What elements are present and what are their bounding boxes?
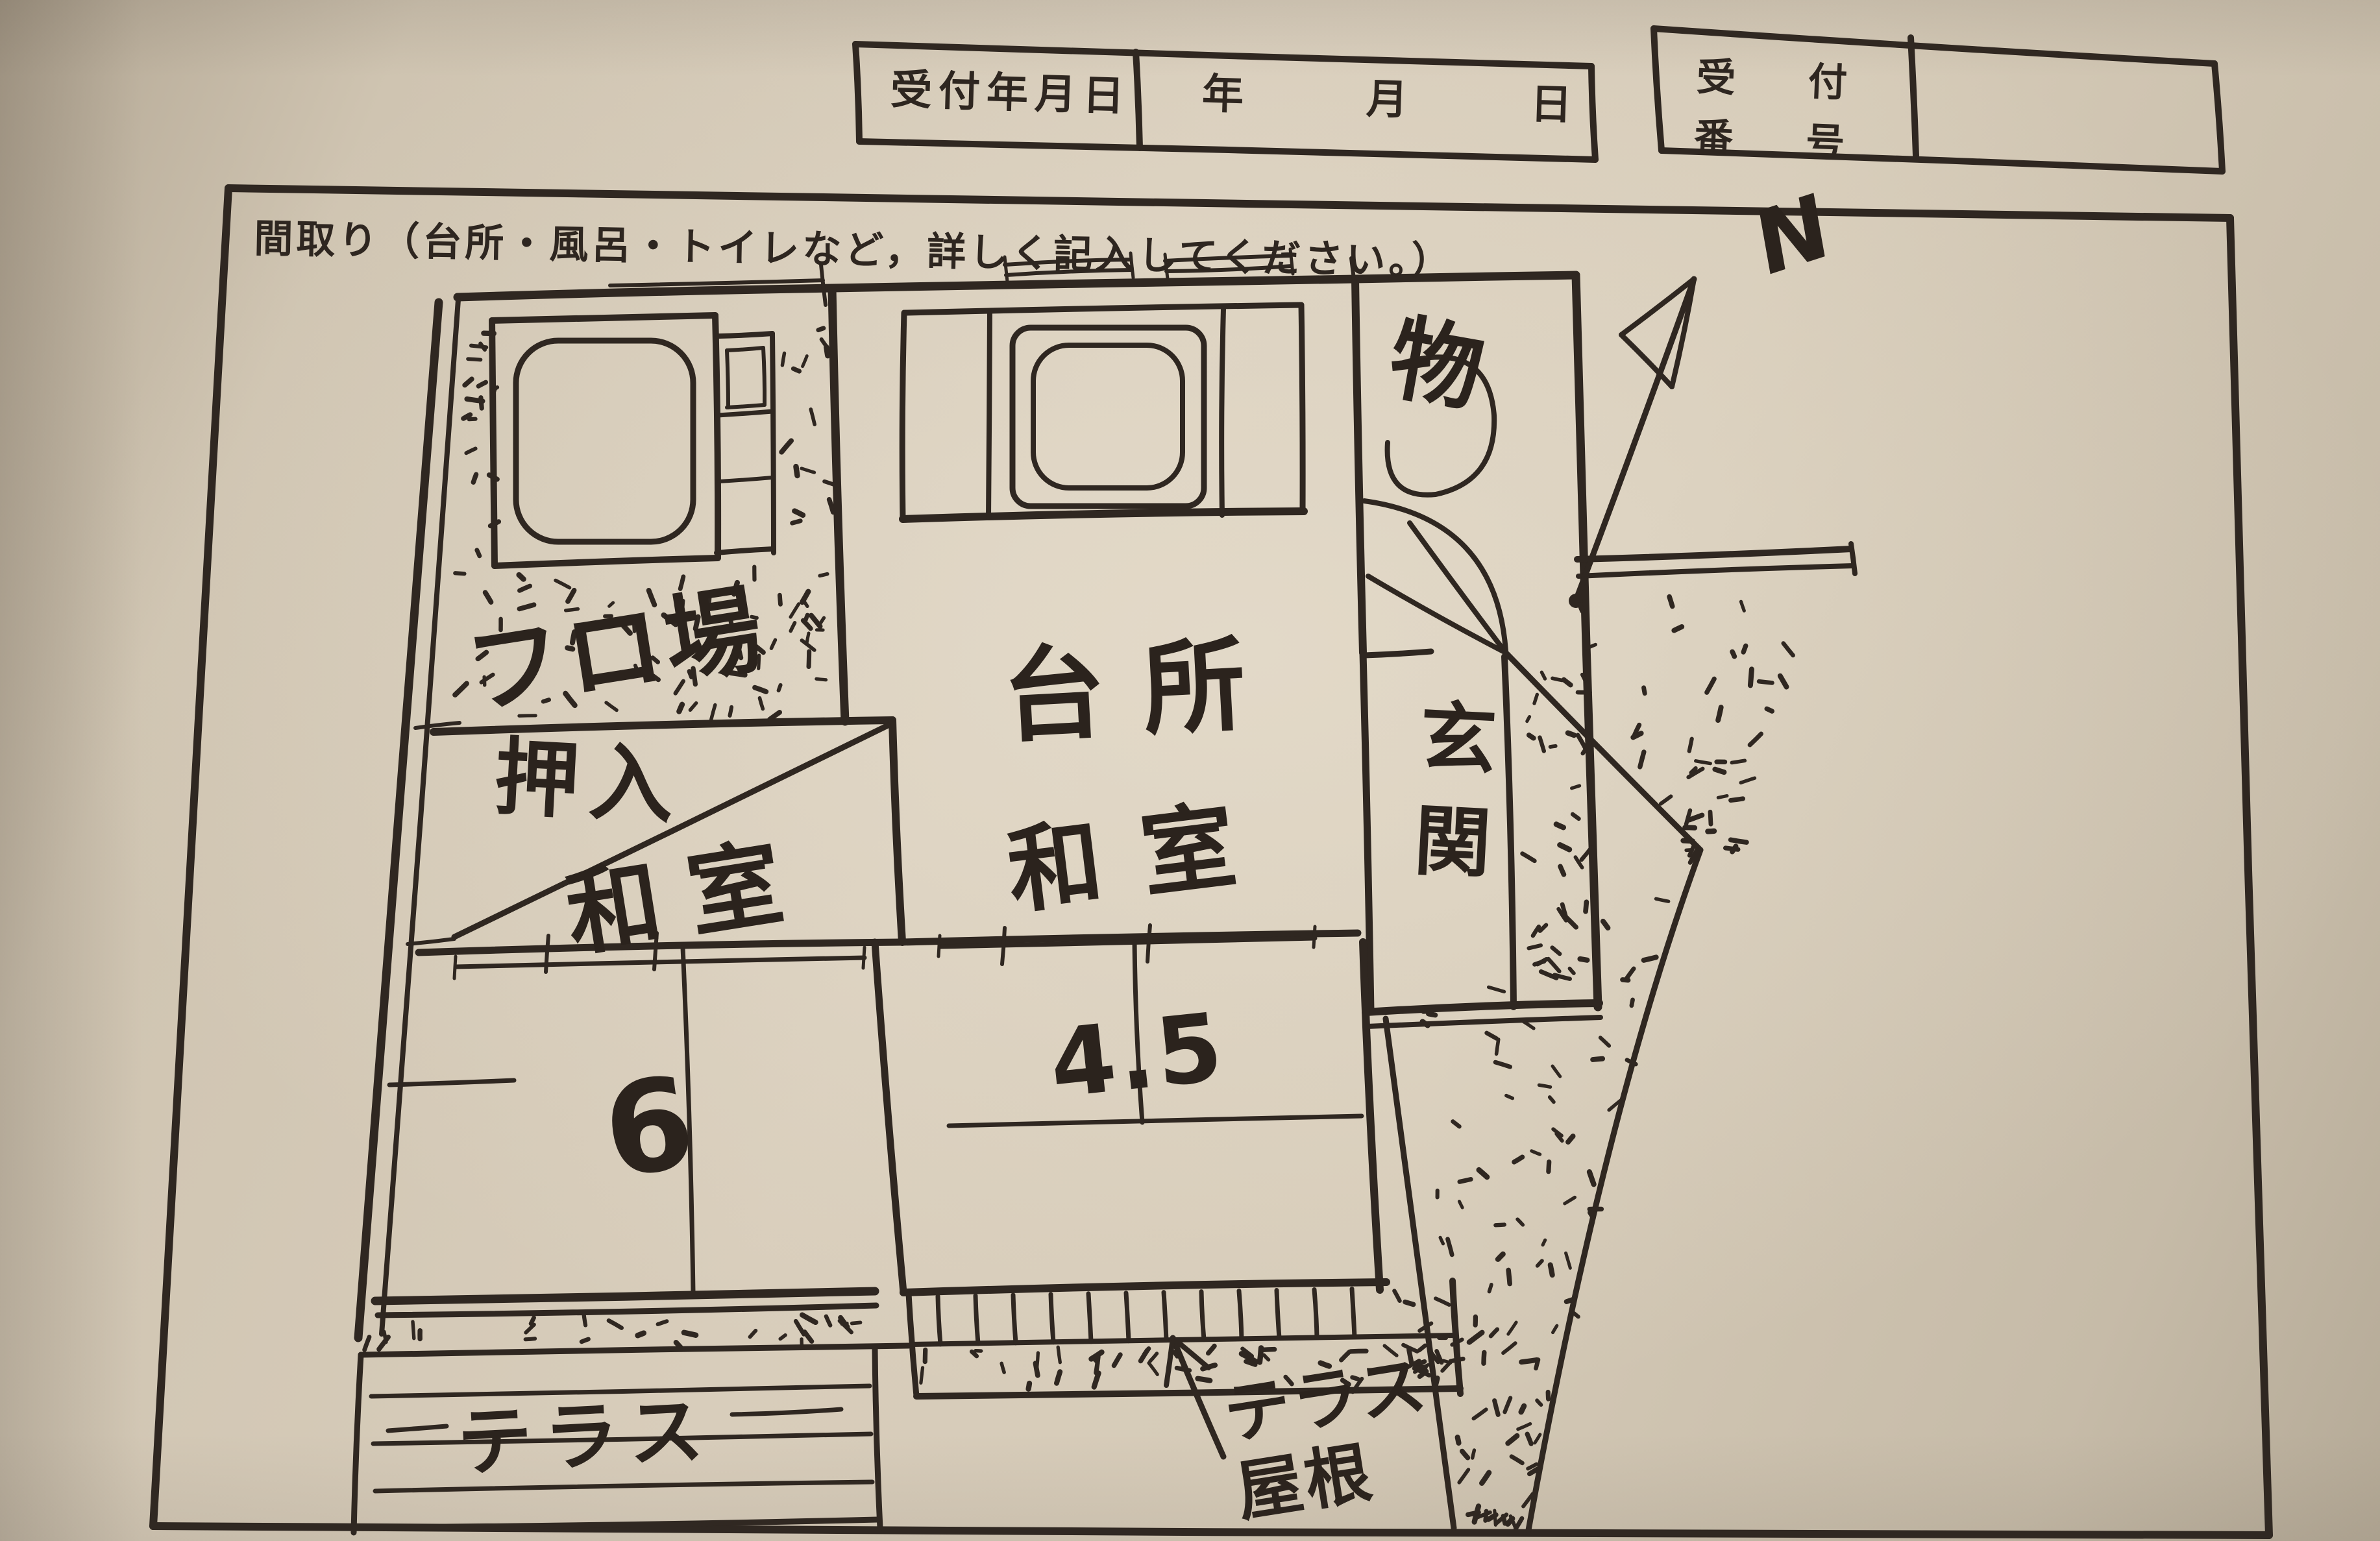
room-label-terrace: テラス — [456, 1394, 717, 1482]
room-label-kitchen: 台所 — [1000, 632, 1286, 749]
reception-number-label-line1: 受 付 — [1695, 47, 1865, 115]
room-label-entrance: 玄関 — [1405, 696, 1492, 907]
reception-date-label: 受付年月日 — [890, 69, 1131, 118]
room-label-storage: 物 — [1383, 312, 1490, 419]
room-size-washitsu-right: 4.5 — [1046, 1000, 1229, 1111]
reception-number-label-line2: 番 号 — [1693, 108, 1863, 175]
room-label-terrace-roof: テラス 屋根 — [1219, 1346, 1446, 1533]
unit-month: 月 — [1366, 79, 1408, 121]
room-size-washitsu-left: 6 — [596, 1059, 702, 1196]
unit-day: 日 — [1530, 84, 1573, 127]
north-label: N — [1750, 180, 1835, 290]
room-label-closet: 押入 — [493, 734, 686, 829]
scanned-form-photo: 間取り（台所・風呂・トイレなど，詳しく記入してください。） 受付年月日 年 月 … — [0, 0, 2380, 1541]
unit-year: 年 — [1201, 73, 1244, 116]
reception-number-label: 受 付 番 号 — [1693, 47, 1865, 175]
